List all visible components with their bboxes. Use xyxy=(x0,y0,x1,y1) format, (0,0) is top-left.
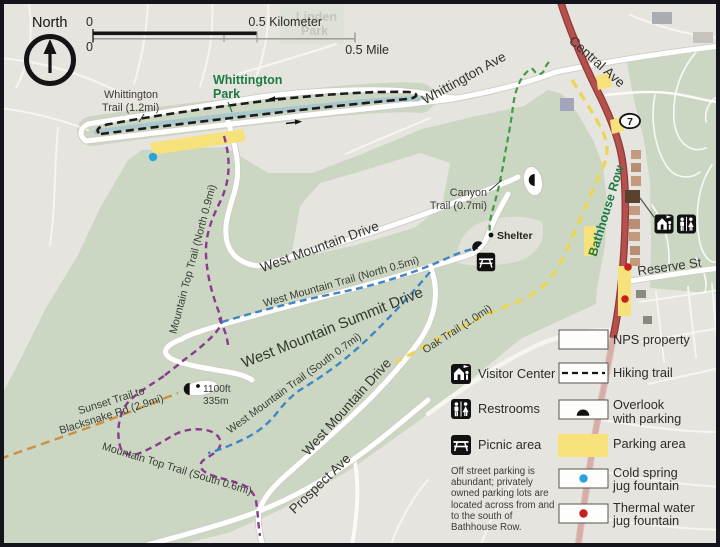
thermal-water-dot xyxy=(621,295,629,303)
legend-swatch-parking xyxy=(558,434,608,457)
picnic-area-icon xyxy=(477,253,495,271)
legend-restrooms-label: Restrooms xyxy=(478,401,540,416)
legend-cold-label: jug fountain xyxy=(612,478,679,493)
restrooms-icon xyxy=(677,215,696,234)
legend-swatch-overlook xyxy=(559,400,608,419)
cold-spring-dot xyxy=(579,474,587,482)
legend-hiking-label: Hiking trail xyxy=(613,365,673,380)
visitor-center-building xyxy=(625,190,640,203)
scale-mi-label: 0.5 Mile xyxy=(345,43,389,57)
legend-nps-label: NPS property xyxy=(613,332,690,347)
shelter-label: Shelter xyxy=(497,230,533,242)
map-svg: 7 Linden Park Whittington Park Whittingt… xyxy=(0,0,720,547)
legend-parking-note: Off street parking is abundant; privatel… xyxy=(451,466,557,533)
legend-thermal-label: jug fountain xyxy=(612,513,679,528)
legend-overlook-label: Overlook xyxy=(613,397,665,412)
scale-km-label: 0.5 Kilometer xyxy=(248,15,322,29)
thermal-water-dot xyxy=(624,263,632,271)
visitor-center-icon xyxy=(655,215,674,234)
elevation-label: 335m xyxy=(203,396,228,407)
canyon-trail-label: Trail (0.7mi) xyxy=(430,200,487,212)
north-label: North xyxy=(32,15,67,31)
whittington-park-label: Whittington xyxy=(213,73,282,87)
trail-map: 7 Linden Park Whittington Park Whittingt… xyxy=(0,0,720,547)
legend-visitor-label: Visitor Center xyxy=(478,366,556,381)
whittington-trail-label: Trail (1.2mi) xyxy=(102,102,159,114)
legend-overlook-label: with parking xyxy=(612,411,681,426)
cold-spring-dot xyxy=(149,153,157,161)
elevation-dot xyxy=(196,384,200,388)
route-number: 7 xyxy=(627,116,633,128)
legend-picnic-label: Picnic area xyxy=(478,437,542,452)
route-7-shield: 7 xyxy=(620,114,640,128)
visitor-center-icon xyxy=(451,364,471,384)
scale-km-zero: 0 xyxy=(86,15,93,29)
canyon-trail-label: Canyon xyxy=(450,187,487,199)
shelter-dot xyxy=(489,233,494,238)
whittington-trail-label: Whittington xyxy=(104,89,158,101)
legend-parking-label: Parking area xyxy=(613,436,686,451)
restrooms-icon xyxy=(451,399,471,419)
scale-mi-zero: 0 xyxy=(86,40,93,54)
legend-swatch-nps xyxy=(559,330,608,349)
elevation-label: 1100ft xyxy=(203,384,231,395)
thermal-water-dot xyxy=(579,509,587,517)
whittington-park-label: Park xyxy=(213,87,240,101)
picnic-area-icon xyxy=(451,435,471,455)
